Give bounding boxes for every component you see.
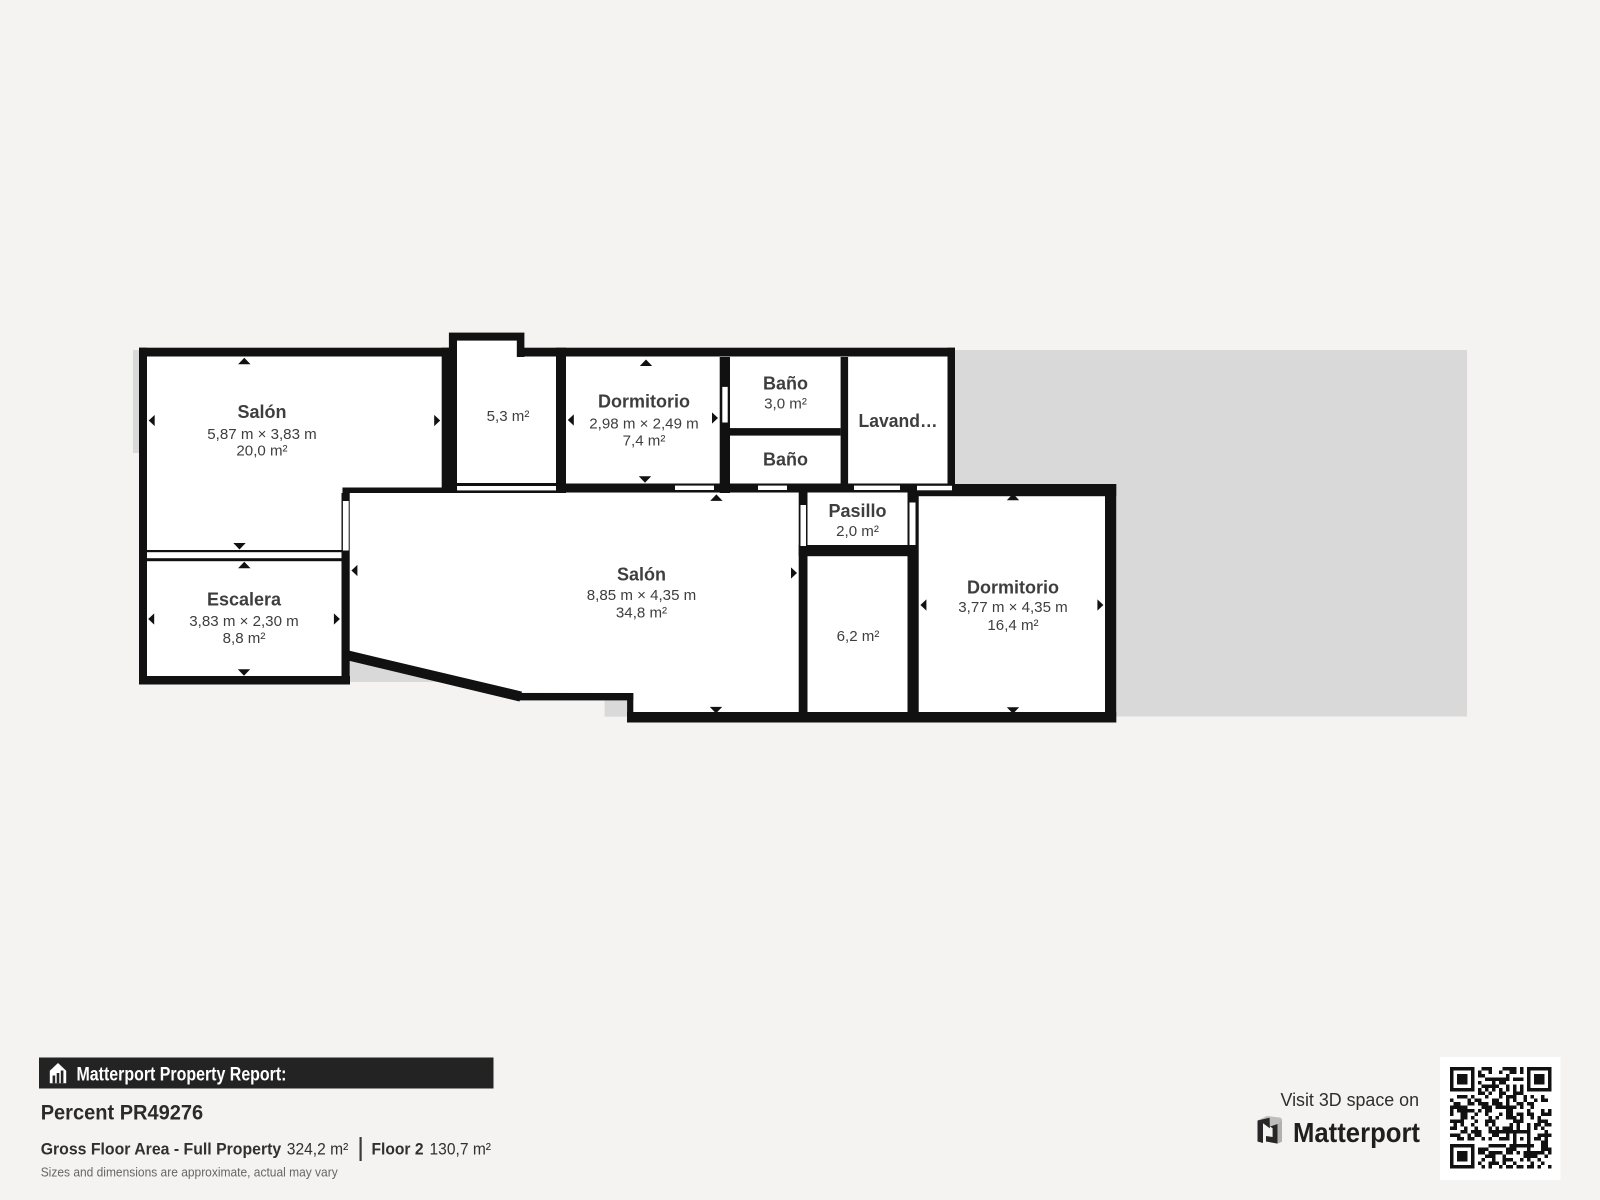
svg-text:Floor 2: Floor 2 [372,1140,424,1159]
svg-text:2,98 m × 2,49 m: 2,98 m × 2,49 m [589,416,699,433]
svg-text:20,0 m²: 20,0 m² [236,443,287,460]
svg-text:8,85 m × 4,35 m: 8,85 m × 4,35 m [587,587,697,604]
svg-text:6,2 m²: 6,2 m² [837,628,880,645]
svg-text:16,4 m²: 16,4 m² [987,617,1038,634]
svg-text:2,0 m²: 2,0 m² [836,523,879,540]
svg-text:Baño: Baño [763,374,808,394]
svg-text:Matterport: Matterport [1293,1117,1420,1148]
svg-text:Percent PR49276: Percent PR49276 [41,1102,204,1125]
svg-text:5,3 m²: 5,3 m² [487,408,530,425]
svg-text:324,2 m²: 324,2 m² [287,1140,349,1159]
svg-text:7,4 m²: 7,4 m² [623,433,666,450]
svg-text:3,83 m × 2,30 m: 3,83 m × 2,30 m [189,613,299,630]
svg-text:Escalera: Escalera [207,590,282,610]
svg-text:Lavand…: Lavand… [859,411,938,431]
svg-text:Matterport Property Report:: Matterport Property Report: [77,1064,287,1085]
svg-text:5,87 m × 3,83 m: 5,87 m × 3,83 m [207,426,317,443]
svg-text:8,8 m²: 8,8 m² [223,630,266,647]
svg-text:Gross Floor Area - Full Proper: Gross Floor Area - Full Property [41,1140,282,1159]
svg-text:3,0 m²: 3,0 m² [764,396,807,413]
svg-text:34,8 m²: 34,8 m² [616,605,667,622]
svg-text:Salón: Salón [617,565,666,585]
svg-text:Sizes and dimensions are appro: Sizes and dimensions are approximate, ac… [41,1165,338,1180]
svg-text:Baño: Baño [763,450,808,470]
svg-text:Pasillo: Pasillo [828,501,886,521]
svg-text:Dormitorio: Dormitorio [598,392,690,412]
svg-text:130,7 m²: 130,7 m² [430,1140,492,1159]
svg-text:Salón: Salón [237,402,286,422]
svg-text:3,77 m × 4,35 m: 3,77 m × 4,35 m [958,599,1068,616]
svg-text:Visit 3D space on: Visit 3D space on [1281,1090,1420,1110]
svg-text:Dormitorio: Dormitorio [967,578,1059,598]
